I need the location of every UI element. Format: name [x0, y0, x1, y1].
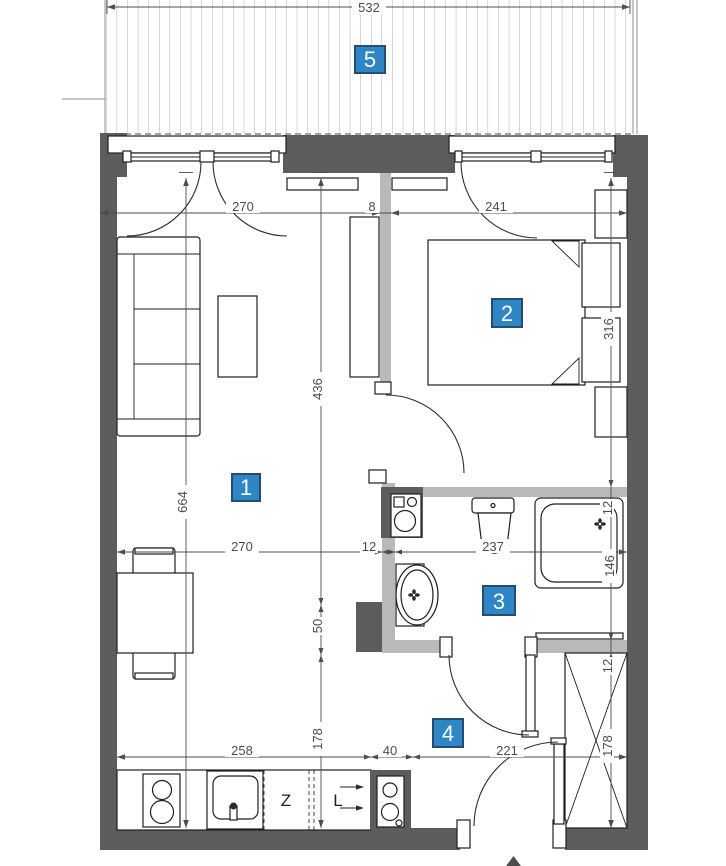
svg-text:5: 5 — [364, 47, 376, 72]
dim-shower-length: 146 — [602, 555, 617, 577]
kitchen: Z L — [117, 770, 411, 830]
dining-set — [117, 548, 193, 679]
dim-kitchen-run: 258 — [231, 743, 253, 758]
wall-bottom-right — [565, 828, 648, 850]
bedroom-door — [369, 382, 464, 483]
bedroom-window-mullion — [531, 151, 541, 162]
svg-text:1: 1 — [240, 475, 252, 500]
dim-living-height-upper: 436 — [310, 378, 325, 400]
wall-top-middle — [283, 135, 455, 173]
room-label-balcony: 5 — [355, 46, 385, 73]
living-window-sill — [108, 136, 286, 153]
floor-plan-drawing: Z L — [0, 0, 726, 866]
dim-living-height-total: 664 — [175, 491, 190, 513]
washbasin — [396, 564, 438, 626]
room-label-hall: 4 — [433, 719, 463, 747]
dim-appliance-niche: 40 — [383, 743, 397, 758]
entrance-marker — [506, 856, 521, 866]
dim-mid-gap: 50 — [310, 619, 325, 633]
fridge-label: L — [333, 791, 342, 810]
dim-hall-wall-thickness: 12 — [600, 659, 615, 673]
tv-cabinet — [350, 217, 379, 377]
wall-bathroom-top — [395, 487, 627, 497]
room-label-bathroom: 3 — [483, 586, 515, 615]
room-label-bedroom: 2 — [492, 299, 522, 327]
living-door-mullion — [200, 151, 214, 162]
dim-living-width-mid: 270 — [231, 539, 253, 554]
svg-text:2: 2 — [501, 301, 513, 326]
sofa — [117, 237, 200, 436]
wall-right — [627, 135, 648, 850]
svg-text:3: 3 — [493, 589, 505, 614]
dim-shower-top-offset: 12 — [600, 501, 615, 515]
dim-wardrobe-height: 178 — [600, 735, 615, 757]
wall-left — [100, 133, 117, 850]
dim-hall-width: 221 — [496, 743, 518, 758]
balcony-terrace — [62, 0, 637, 134]
wall-bathroom-bottom-right — [530, 640, 627, 653]
room-label-living: 1 — [232, 474, 260, 501]
partition-living-bedroom — [380, 173, 391, 385]
headboard-panel — [582, 243, 620, 307]
svg-text:4: 4 — [442, 721, 454, 746]
bedroom-furniture — [428, 190, 627, 437]
dim-bedroom-depth: 316 — [601, 318, 616, 340]
dishwasher-label: Z — [281, 791, 291, 810]
washing-machine — [391, 494, 421, 537]
dim-partition-thickness: 8 — [368, 199, 375, 214]
duct-shaft — [356, 602, 382, 652]
niche-appliance — [370, 770, 411, 830]
floor-plan: Z L — [0, 0, 726, 866]
dining-table — [117, 573, 193, 653]
balcony-door-left-swing — [127, 162, 201, 236]
dim-kitchen-zone-height: 178 — [310, 728, 325, 750]
radiator-bedroom — [392, 178, 447, 190]
wall-bottom-left — [100, 828, 460, 850]
dim-balcony-width: 532 — [358, 0, 380, 15]
built-in-wardrobe — [565, 653, 627, 828]
coffee-table — [218, 296, 257, 377]
dim-bathroom-width: 237 — [482, 539, 504, 554]
dim-bath-wall-thickness: 12 — [362, 539, 376, 554]
dim-bedroom-width: 241 — [485, 199, 507, 214]
dim-living-width-top: 270 — [232, 199, 254, 214]
